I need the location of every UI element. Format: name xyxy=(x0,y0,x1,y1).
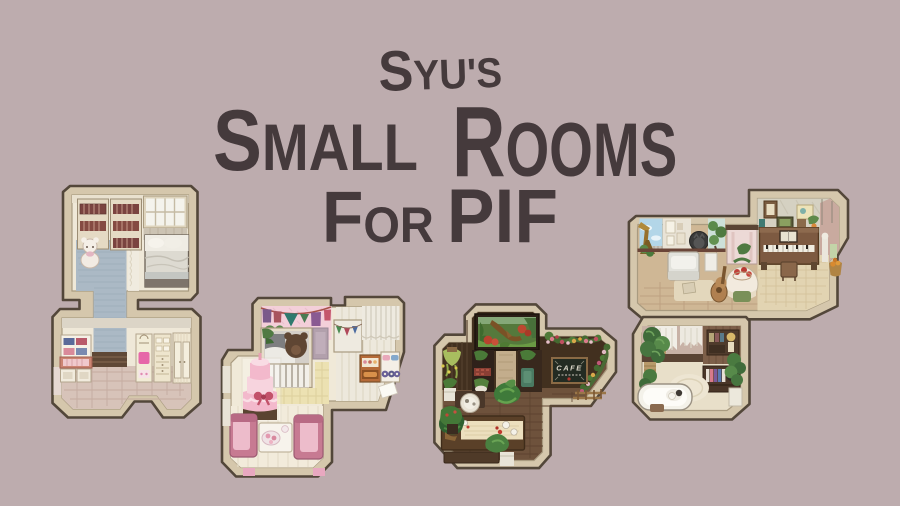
svg-text:CAFE: CAFE xyxy=(556,364,582,373)
